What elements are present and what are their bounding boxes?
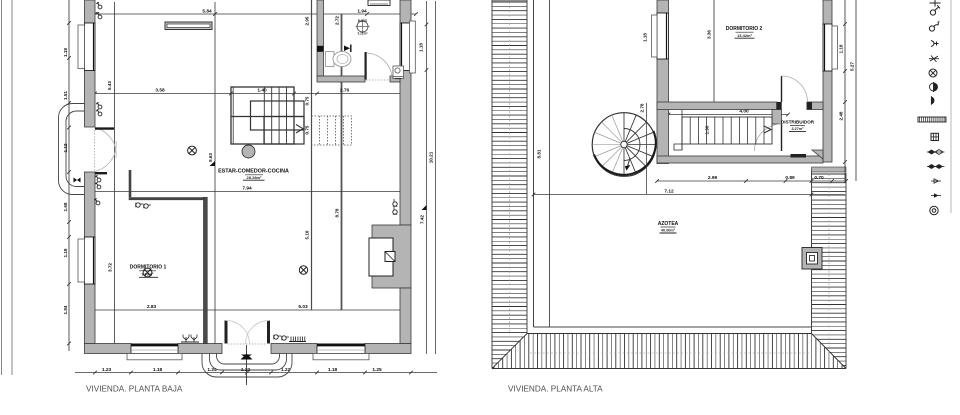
svg-text:1.18: 1.18 bbox=[419, 43, 424, 52]
svg-text:28.28m²: 28.28m² bbox=[247, 175, 263, 180]
svg-text:1.12: 1.12 bbox=[63, 143, 68, 152]
svg-text:0.89: 0.89 bbox=[785, 175, 795, 181]
svg-text:0.75: 0.75 bbox=[305, 96, 310, 105]
svg-text:2.72: 2.72 bbox=[335, 16, 340, 25]
svg-text:1.18: 1.18 bbox=[643, 33, 648, 42]
svg-text:VIVIENDA. PLANTA BAJA: VIVIENDA. PLANTA BAJA bbox=[86, 385, 183, 394]
svg-text:3.27m²: 3.27m² bbox=[791, 127, 804, 131]
svg-text:1.18: 1.18 bbox=[63, 248, 68, 257]
svg-text:9.09m²: 9.09m² bbox=[141, 272, 154, 276]
svg-text:0.75: 0.75 bbox=[305, 125, 310, 134]
svg-text:7.94: 7.94 bbox=[242, 185, 252, 191]
svg-text:VIVIENDA. PLANTA ALTA: VIVIENDA. PLANTA ALTA bbox=[508, 385, 603, 394]
svg-text:1.40: 1.40 bbox=[257, 87, 267, 93]
svg-text:40.00m²: 40.00m² bbox=[661, 229, 676, 233]
svg-text:7.42: 7.42 bbox=[420, 215, 425, 224]
svg-text:9.63: 9.63 bbox=[208, 153, 213, 162]
svg-text:1.25: 1.25 bbox=[372, 367, 382, 373]
svg-text:1.18: 1.18 bbox=[63, 48, 68, 57]
svg-text:2.76: 2.76 bbox=[340, 87, 350, 93]
svg-text:3.58: 3.58 bbox=[155, 87, 165, 93]
svg-text:5.27: 5.27 bbox=[850, 62, 855, 71]
svg-text:2.48: 2.48 bbox=[839, 111, 844, 120]
svg-text:2.83: 2.83 bbox=[147, 304, 157, 310]
svg-text:13.42m²: 13.42m² bbox=[737, 33, 753, 38]
svg-text:0.70: 0.70 bbox=[814, 175, 824, 181]
svg-text:1.90: 1.90 bbox=[705, 125, 710, 134]
svg-text:1.23: 1.23 bbox=[102, 367, 112, 373]
svg-text:10.21: 10.21 bbox=[429, 151, 434, 163]
svg-text:1.24: 1.24 bbox=[207, 367, 217, 373]
svg-text:7.12: 7.12 bbox=[664, 188, 674, 194]
svg-text:5.43: 5.43 bbox=[107, 81, 112, 90]
svg-text:3.72: 3.72 bbox=[108, 263, 113, 272]
svg-text:3.36: 3.36 bbox=[707, 30, 712, 39]
svg-text:1.18: 1.18 bbox=[328, 367, 338, 373]
svg-text:BAÑO: BAÑO bbox=[358, 18, 368, 23]
svg-text:8.78: 8.78 bbox=[335, 208, 340, 217]
svg-text:1.68: 1.68 bbox=[63, 202, 68, 211]
svg-text:1.94: 1.94 bbox=[357, 8, 367, 14]
svg-text:2.99: 2.99 bbox=[708, 175, 718, 181]
svg-text:1.84: 1.84 bbox=[63, 305, 68, 314]
svg-text:8.81: 8.81 bbox=[537, 149, 542, 158]
svg-text:1.51: 1.51 bbox=[63, 91, 68, 100]
svg-text:5.03: 5.03 bbox=[298, 304, 308, 310]
svg-text:5.84: 5.84 bbox=[202, 8, 212, 14]
svg-text:2.95: 2.95 bbox=[305, 16, 310, 25]
svg-text:AZOTEA: AZOTEA bbox=[658, 221, 679, 227]
svg-text:3.21m²: 3.21m² bbox=[357, 32, 367, 36]
svg-text:DISTRIBUIDOR: DISTRIBUIDOR bbox=[781, 120, 815, 125]
svg-text:5.18: 5.18 bbox=[305, 230, 310, 239]
svg-text:DORMITORIO 1: DORMITORIO 1 bbox=[130, 264, 167, 270]
svg-text:2.78: 2.78 bbox=[640, 103, 645, 112]
svg-text:1.18: 1.18 bbox=[839, 44, 844, 53]
svg-text:ESTAR-COMEDOR-COCINA: ESTAR-COMEDOR-COCINA bbox=[218, 168, 289, 174]
svg-text:1.18: 1.18 bbox=[153, 367, 163, 373]
svg-text:DORMITORIO 2: DORMITORIO 2 bbox=[726, 26, 763, 32]
